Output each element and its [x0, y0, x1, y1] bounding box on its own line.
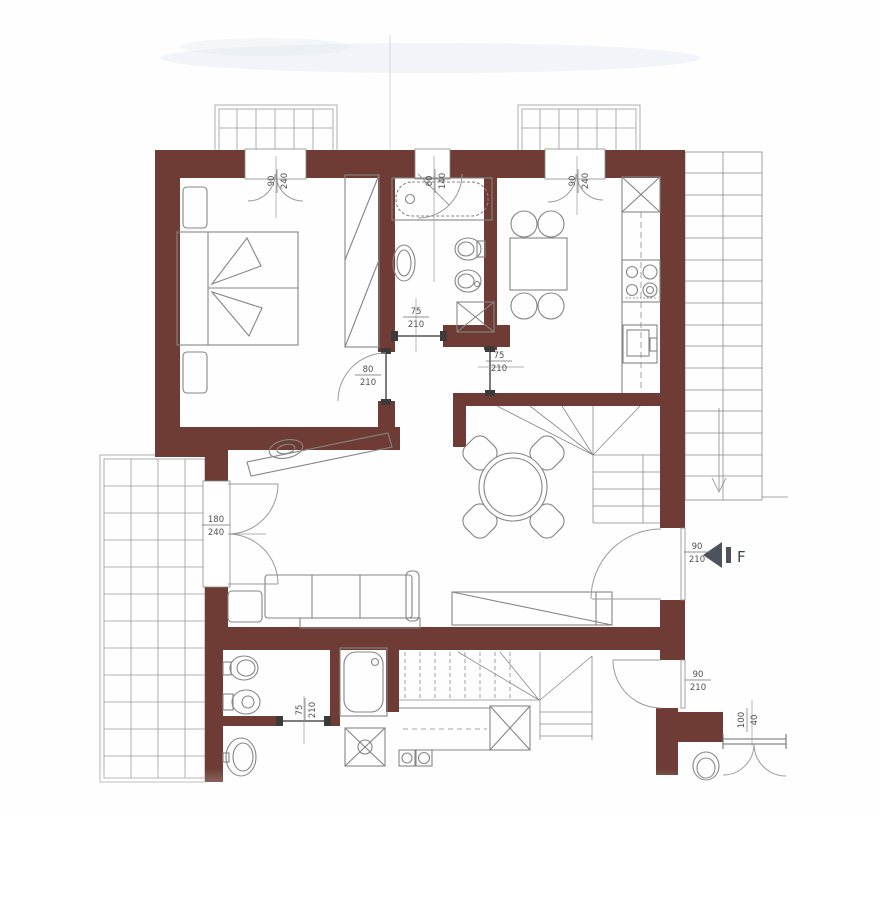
svg-text:210: 210 — [308, 702, 318, 718]
dim-lower-door: 90 210 — [685, 670, 711, 693]
lower-bathroom-door — [276, 696, 331, 744]
svg-text:100: 100 — [737, 712, 747, 728]
svg-text:240: 240 — [581, 173, 591, 189]
walls — [155, 150, 723, 782]
svg-text:90: 90 — [568, 176, 578, 187]
bedroom-door — [338, 348, 391, 405]
kitchen — [478, 156, 660, 396]
entrance-arrow-icon — [703, 542, 722, 568]
drain — [406, 195, 415, 204]
svg-text:40: 40 — [750, 715, 760, 726]
lower-stove — [399, 750, 432, 766]
svg-text:90: 90 — [267, 176, 277, 187]
svg-text:140: 140 — [438, 173, 448, 189]
chair — [511, 211, 537, 237]
chair — [511, 293, 537, 319]
lower-bidet — [223, 656, 258, 680]
svg-text:90: 90 — [692, 542, 703, 552]
svg-text:75: 75 — [411, 307, 422, 317]
lower-skylight — [490, 706, 530, 750]
living-room — [228, 406, 661, 628]
svg-text:180: 180 — [208, 515, 224, 525]
washbasin — [393, 245, 415, 281]
scan-fade — [0, 768, 879, 900]
chair — [538, 293, 564, 319]
balcony-top-left — [215, 105, 337, 152]
lower-staircase — [399, 652, 592, 740]
stair-direction-arrow — [712, 408, 726, 492]
sofa — [265, 571, 420, 628]
svg-text:75: 75 — [494, 351, 505, 361]
svg-text:240: 240 — [280, 173, 290, 189]
lower-bathtub — [340, 648, 387, 716]
svg-text:210: 210 — [689, 555, 705, 565]
floor-plan-page: F — [0, 0, 879, 900]
svg-text:75: 75 — [295, 705, 305, 716]
svg-text:240: 240 — [208, 528, 224, 538]
kitchen-vent-unit — [622, 177, 660, 212]
svg-text:90: 90 — [693, 670, 704, 680]
kitchen-table — [510, 211, 567, 319]
side-table — [228, 591, 262, 622]
entrance-letter: F — [737, 548, 746, 566]
scan-smudge — [160, 35, 700, 150]
svg-text:60: 60 — [425, 176, 435, 187]
entrance-marker: F — [703, 542, 746, 568]
lower-window — [723, 700, 786, 776]
terrace — [100, 455, 205, 782]
nightstand — [183, 352, 207, 393]
sideboard — [452, 592, 612, 625]
wardrobe — [345, 175, 379, 347]
chair — [538, 211, 564, 237]
dim-bedroom-door: 80 210 — [355, 365, 381, 388]
dim-lower-bathroom-door: 75 210 — [295, 698, 318, 722]
floor-plan: F — [0, 0, 879, 900]
balcony-top-right — [518, 105, 640, 152]
pillow — [212, 292, 262, 336]
bedroom — [177, 156, 391, 405]
toilet — [455, 238, 485, 260]
svg-text:210: 210 — [360, 378, 376, 388]
pillow — [212, 238, 261, 284]
lower-kitchen — [399, 706, 530, 766]
nightstand — [183, 187, 207, 228]
svg-text:210: 210 — [491, 364, 507, 374]
bidet — [455, 270, 481, 292]
svg-text:210: 210 — [690, 683, 706, 693]
entrance-door — [591, 529, 661, 599]
double-bed — [177, 232, 298, 345]
lower-toilet — [223, 690, 260, 714]
lower-shower — [345, 728, 385, 766]
svg-text:80: 80 — [363, 365, 374, 375]
external-staircase — [685, 152, 788, 500]
terrace-door-swing — [228, 484, 278, 584]
dim-lower-window: 100 40 — [737, 708, 760, 732]
kitchen-sink — [623, 325, 657, 363]
lower-door-swing — [613, 660, 661, 708]
round-table — [459, 432, 568, 542]
svg-text:210: 210 — [408, 320, 424, 330]
